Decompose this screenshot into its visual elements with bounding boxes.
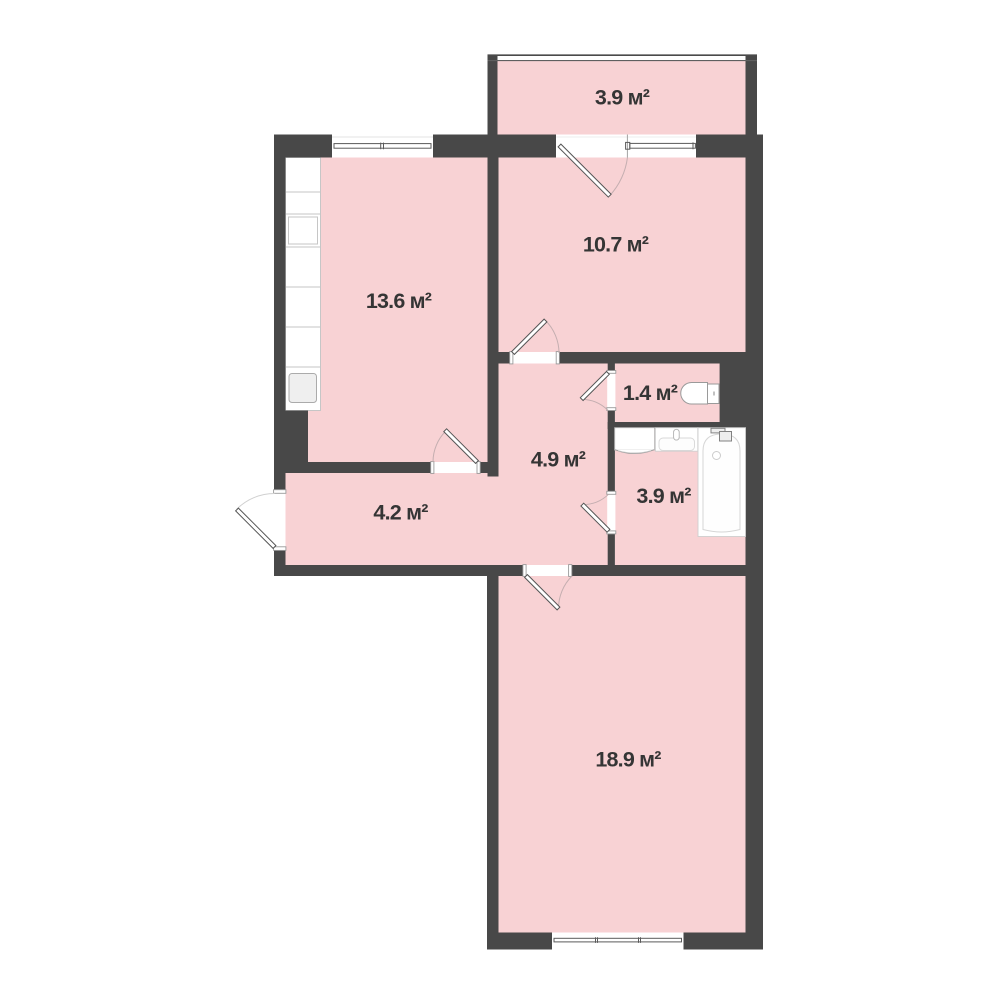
svg-text:13.6 м²: 13.6 м² [366,289,432,313]
svg-text:1.4 м²: 1.4 м² [623,381,678,405]
svg-text:3.9 м²: 3.9 м² [636,484,691,508]
svg-text:3.9 м²: 3.9 м² [595,86,650,110]
svg-text:4.9 м²: 4.9 м² [531,448,586,472]
svg-text:18.9 м²: 18.9 м² [595,748,661,772]
svg-text:10.7 м²: 10.7 м² [583,233,649,257]
svg-text:4.2 м²: 4.2 м² [373,501,428,525]
